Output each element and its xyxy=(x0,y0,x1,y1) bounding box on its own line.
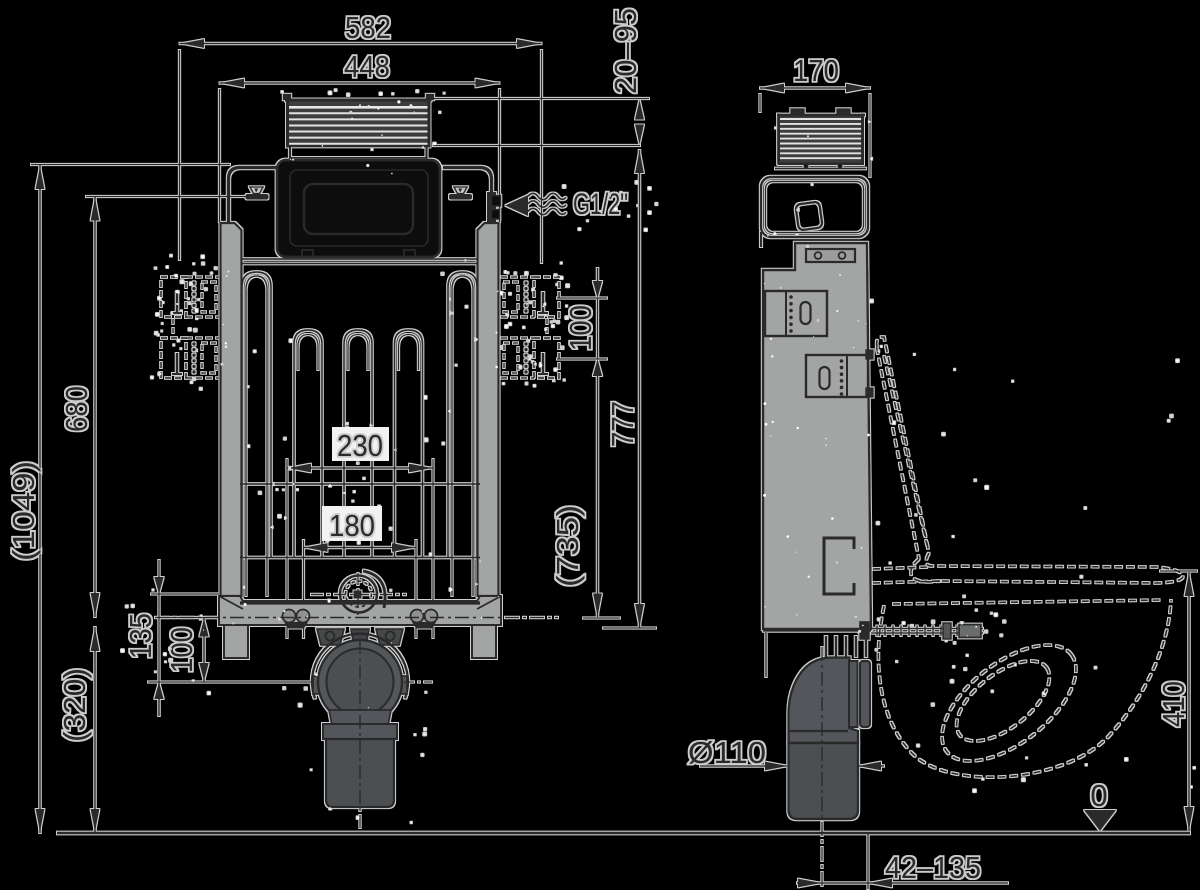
svg-text:230: 230 xyxy=(337,428,383,463)
svg-text:777: 777 xyxy=(605,401,640,447)
svg-text:0: 0 xyxy=(1090,778,1107,813)
svg-text:(735): (735) xyxy=(550,505,585,587)
svg-text:42–135: 42–135 xyxy=(885,850,981,885)
svg-text:448: 448 xyxy=(344,49,390,84)
svg-text:Ø110: Ø110 xyxy=(688,735,766,770)
svg-text:680: 680 xyxy=(59,386,94,432)
svg-text:G1/2": G1/2" xyxy=(573,188,628,221)
svg-text:20–95: 20–95 xyxy=(608,8,643,94)
svg-text:170: 170 xyxy=(793,53,839,88)
svg-text:(1049): (1049) xyxy=(6,461,41,561)
svg-text:100: 100 xyxy=(164,627,199,673)
svg-text:582: 582 xyxy=(345,10,391,45)
svg-text:(320): (320) xyxy=(57,668,92,742)
svg-text:180: 180 xyxy=(329,508,375,543)
svg-text:100: 100 xyxy=(563,305,598,351)
svg-text:410: 410 xyxy=(1156,681,1191,727)
svg-text:135: 135 xyxy=(123,613,158,659)
